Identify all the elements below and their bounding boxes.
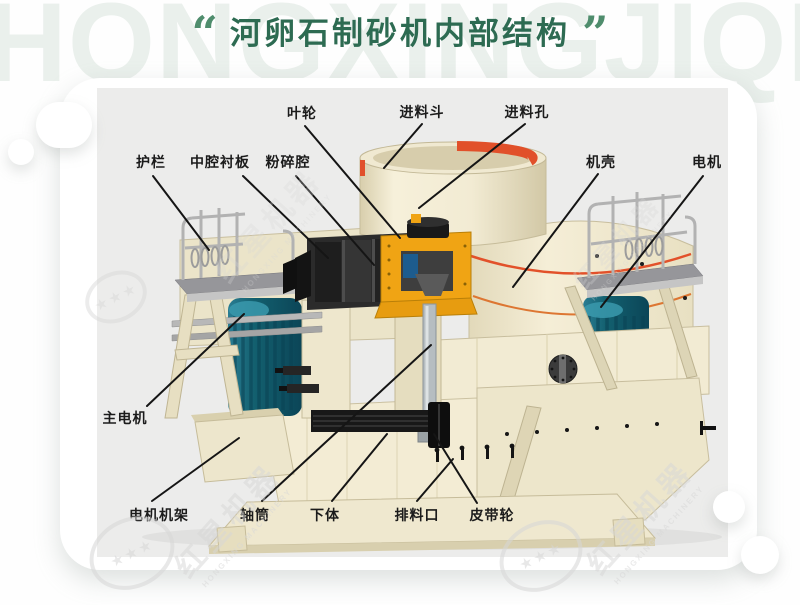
decor-circle-right2 (741, 536, 779, 574)
part-label-belt-pulley: 皮带轮 (470, 505, 515, 525)
page-title: 河卵石制砂机内部结构 (230, 14, 570, 54)
part-label-motor: 电机 (692, 152, 722, 172)
part-label-impeller: 叶轮 (287, 103, 317, 123)
title-row: “ 河卵石制砂机内部结构 ” (0, 14, 800, 60)
part-label-guardrail: 护栏 (136, 152, 166, 172)
part-label-motor-frame: 电机机架 (129, 505, 189, 525)
decor-pill-left (36, 102, 92, 148)
part-label-casing: 机壳 (586, 152, 616, 172)
part-label-shaft-tube: 轴筒 (240, 505, 270, 525)
open-quote-icon: “ (192, 10, 218, 56)
part-label-cavity-liner: 中腔衬板 (190, 152, 250, 172)
decor-circle-left (8, 139, 34, 165)
diagram-panel: 叶轮 进料斗 进料孔 护栏 中腔衬板 粉碎腔 机壳 电机 主电机 电机机架 轴筒… (97, 88, 728, 557)
diagram-card: 叶轮 进料斗 进料孔 护栏 中腔衬板 粉碎腔 机壳 电机 主电机 电机机架 轴筒… (60, 78, 757, 570)
decor-circle-right1 (713, 491, 745, 523)
part-label-crushing-chamber: 粉碎腔 (266, 152, 311, 172)
part-label-discharge-port: 排料口 (395, 505, 440, 525)
part-label-feed-port: 进料孔 (505, 102, 550, 122)
hopper-shape (360, 142, 546, 246)
part-label-feed-hopper: 进料斗 (400, 102, 445, 122)
flange-shape (549, 355, 577, 383)
part-label-lower-body: 下体 (310, 505, 340, 525)
part-label-main-motor: 主电机 (103, 408, 148, 428)
close-quote-icon: ” (582, 10, 608, 56)
